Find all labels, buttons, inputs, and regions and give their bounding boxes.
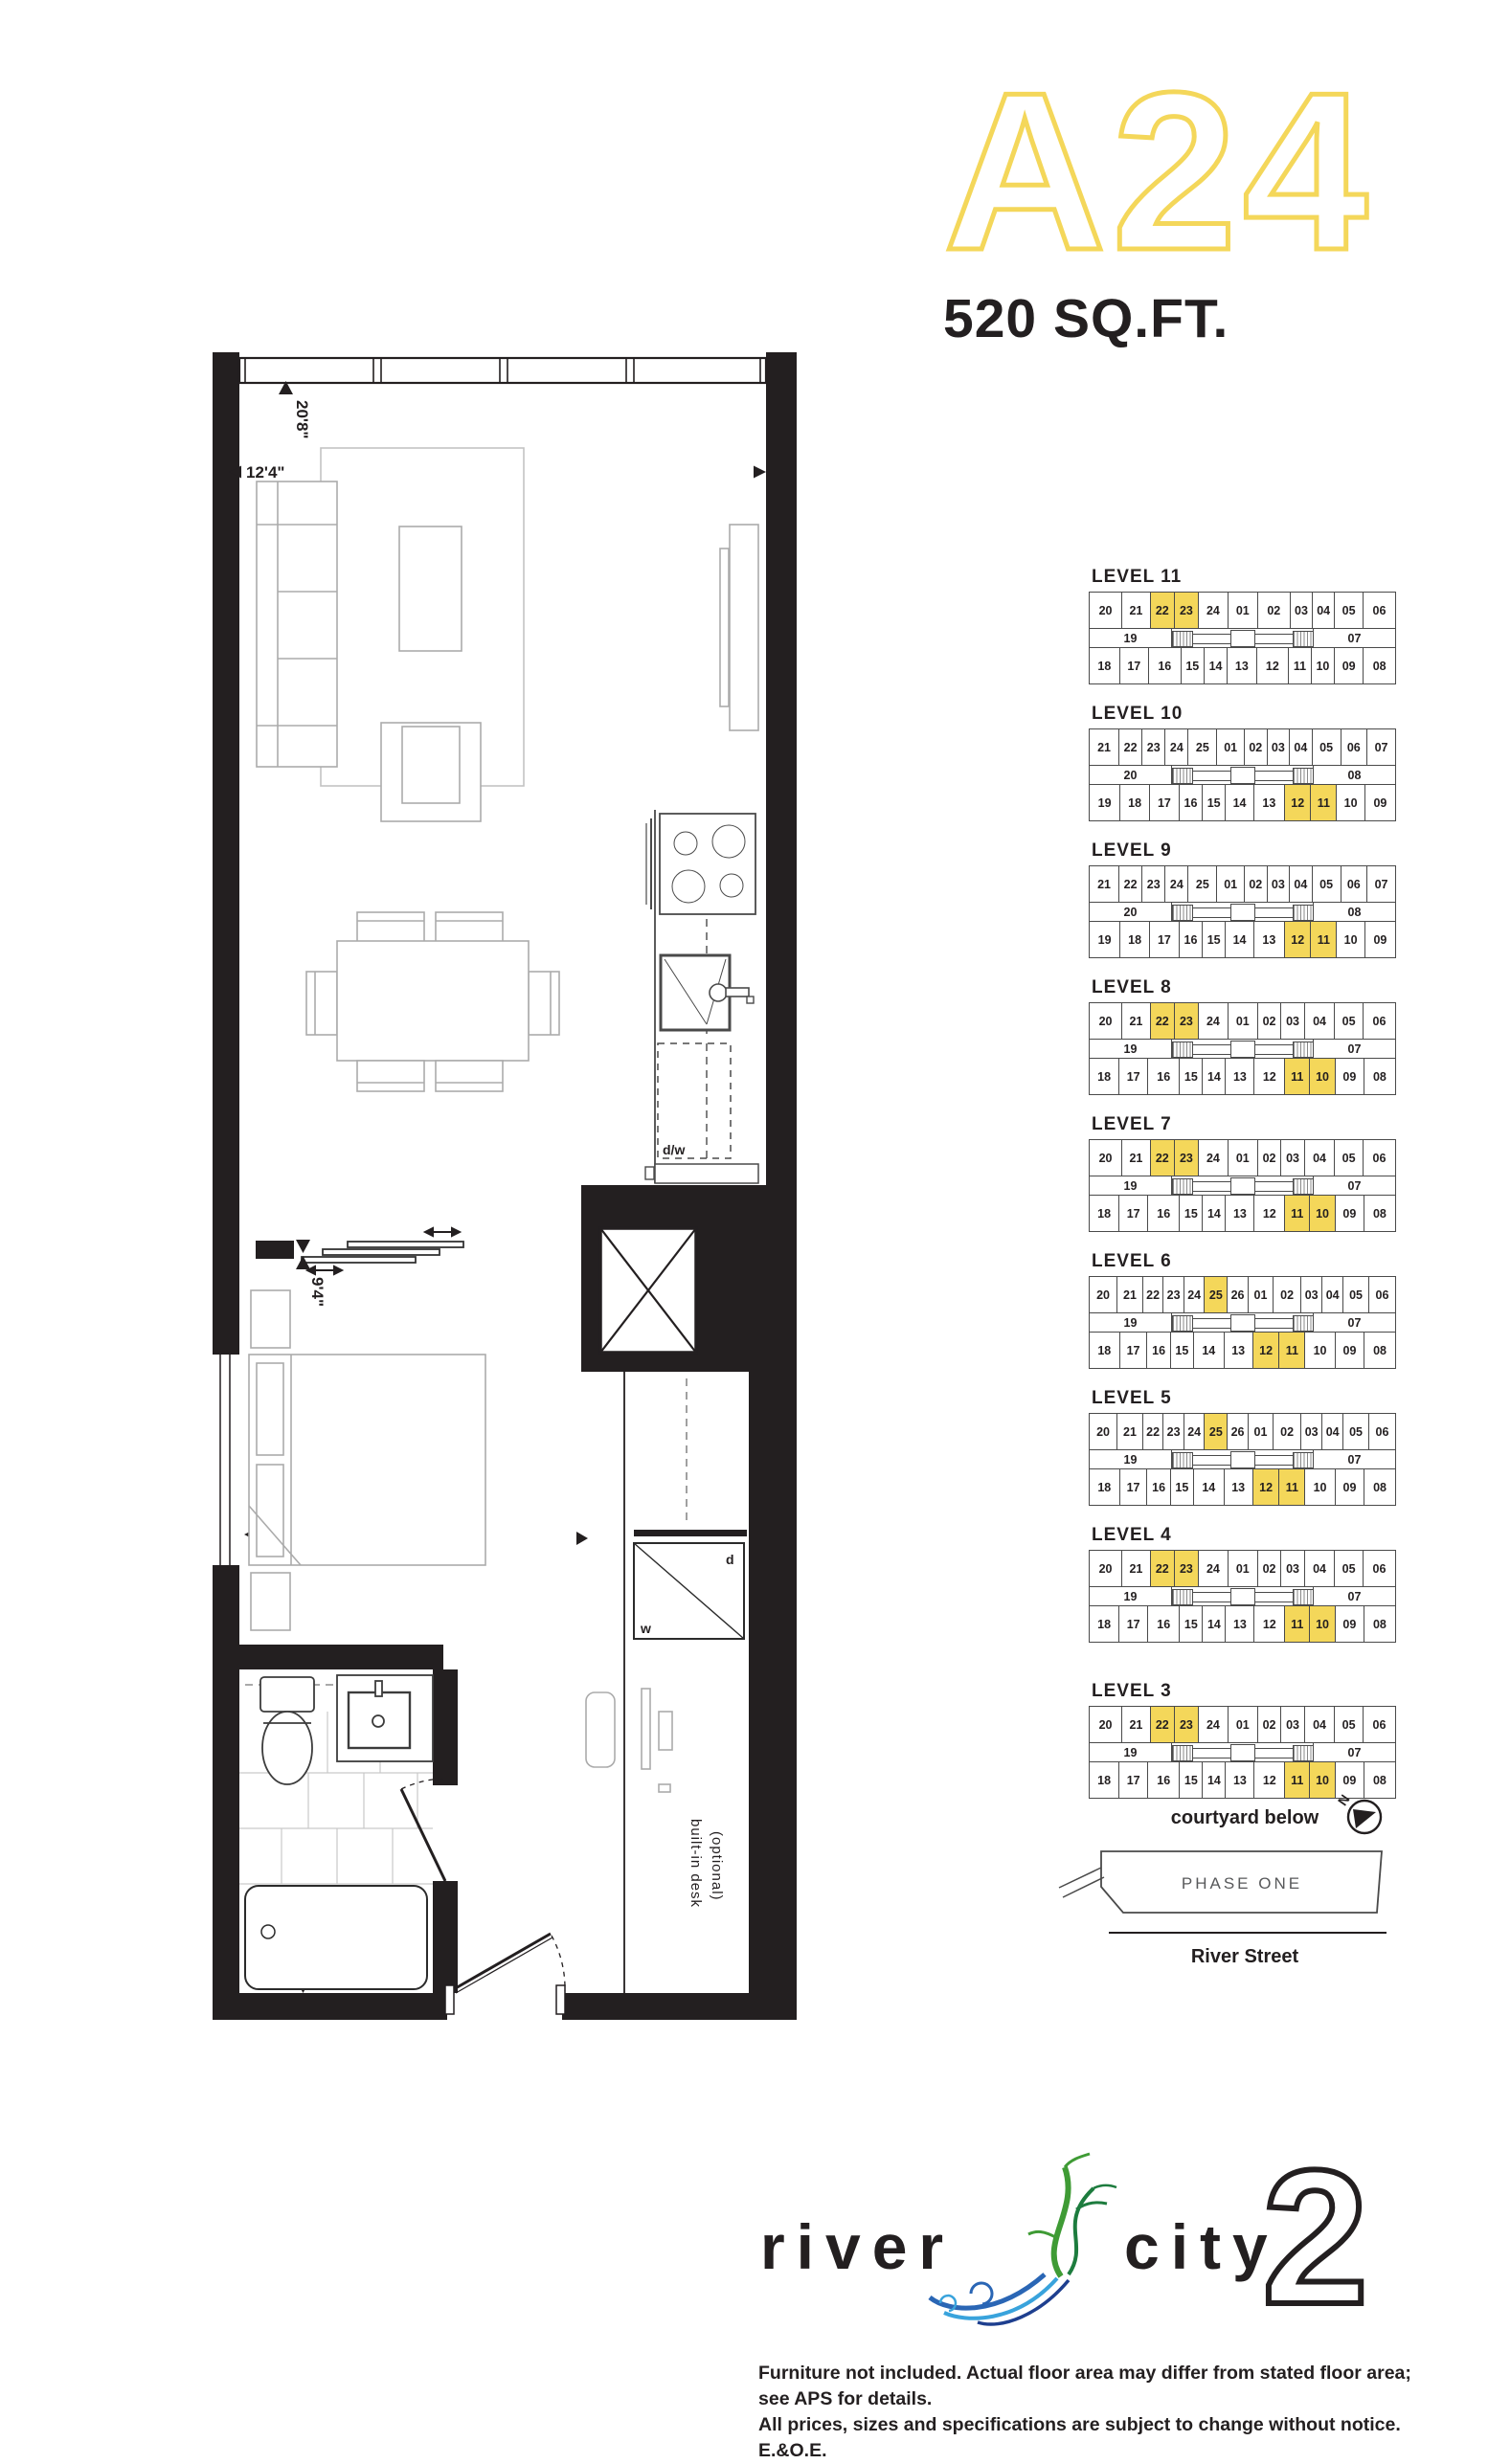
unit-cell-19: 19 — [1089, 1449, 1172, 1469]
entry-door — [445, 1934, 565, 2014]
unit-cell-18: 18 — [1089, 1195, 1119, 1232]
unit-cell-19: 19 — [1089, 1039, 1172, 1059]
disclaimer-line2: All prices, sizes and specifications are… — [758, 2412, 1419, 2464]
corridor — [1192, 1181, 1231, 1192]
unit-cell-23: 23 — [1141, 865, 1165, 903]
unit-cell-08: 08 — [1364, 1195, 1396, 1232]
unit-cell-19: 19 — [1089, 1176, 1172, 1196]
unit-cell-17: 17 — [1119, 647, 1149, 684]
unit-cell-12: 12 — [1253, 1058, 1285, 1095]
unit-cell-12: 12 — [1256, 647, 1290, 684]
unit-cell-13: 13 — [1225, 1605, 1254, 1643]
stair-icon — [1172, 768, 1193, 784]
unit-cell-20: 20 — [1089, 902, 1172, 922]
level-label: LEVEL 3 — [1092, 1681, 1398, 1702]
unit-cell-06: 06 — [1341, 865, 1368, 903]
corridor — [1254, 634, 1294, 644]
unit-cell-14: 14 — [1202, 1605, 1226, 1643]
elevator-icon — [1230, 1588, 1255, 1605]
stair-icon — [1172, 631, 1193, 647]
unit-cell-09: 09 — [1335, 1332, 1364, 1369]
stair-icon — [1172, 1315, 1193, 1332]
unit-cell-02: 02 — [1244, 865, 1268, 903]
unit-cell-03: 03 — [1267, 728, 1291, 766]
unit-cell-07: 07 — [1313, 628, 1396, 648]
unit-cell-11-highlighted: 11 — [1284, 1058, 1310, 1095]
unit-cell-09: 09 — [1335, 1468, 1364, 1506]
unit-cell-07: 07 — [1313, 1176, 1396, 1196]
unit-cell-20: 20 — [1089, 1139, 1122, 1176]
unit-cell-24: 24 — [1198, 1706, 1229, 1743]
unit-cell-10: 10 — [1311, 647, 1335, 684]
bedroom-window — [216, 1355, 234, 1565]
keyplate: 2021222324010203040506190718171615141312… — [1090, 593, 1396, 684]
level-block-level-10: LEVEL 1021222324250102030405060720081918… — [1090, 704, 1398, 821]
unit-cell-03: 03 — [1280, 1002, 1305, 1040]
stair-icon — [1172, 1042, 1193, 1058]
unit-cell-11: 11 — [1288, 647, 1312, 684]
unit-cell-05: 05 — [1334, 1550, 1364, 1587]
unit-cell-13: 13 — [1225, 1761, 1254, 1799]
unit-cell-05: 05 — [1334, 1139, 1364, 1176]
unit-cell-20: 20 — [1089, 765, 1172, 785]
unit-cell-24: 24 — [1164, 728, 1188, 766]
corridor — [1192, 1044, 1231, 1055]
unit-cell-18: 18 — [1089, 1605, 1119, 1643]
unit-cell-03: 03 — [1300, 1413, 1322, 1450]
unit-cell-05: 05 — [1342, 1276, 1369, 1313]
unit-cell-02: 02 — [1273, 1276, 1301, 1313]
elevator-icon — [1230, 767, 1255, 784]
unit-cell-02: 02 — [1257, 1706, 1282, 1743]
unit-cell-13: 13 — [1227, 647, 1256, 684]
unit-cell-06: 06 — [1363, 1002, 1396, 1040]
unit-cell-21: 21 — [1089, 728, 1119, 766]
unit-cell-01: 01 — [1248, 1276, 1274, 1313]
corridor — [1254, 1044, 1294, 1055]
elevator-icon — [1230, 1041, 1255, 1058]
unit-cell-04: 04 — [1304, 1706, 1336, 1743]
desk-label-line2: (optional) — [709, 1831, 725, 1901]
unit-cell-18: 18 — [1089, 1468, 1120, 1506]
unit-cell-16: 16 — [1179, 784, 1203, 821]
unit-cell-09: 09 — [1335, 1058, 1364, 1095]
unit-cell-09: 09 — [1334, 647, 1364, 684]
corridor — [1254, 1592, 1294, 1602]
unit-cell-07: 07 — [1313, 1312, 1396, 1333]
unit-cell-06: 06 — [1368, 1276, 1396, 1313]
stair-icon — [1293, 1589, 1314, 1605]
unit-cell-20: 20 — [1089, 592, 1122, 629]
unit-cell-20: 20 — [1089, 1550, 1122, 1587]
unit-cell-14: 14 — [1202, 1761, 1226, 1799]
corridor — [1192, 634, 1231, 644]
unit-cell-08: 08 — [1364, 1058, 1396, 1095]
unit-floorplan: d/w 20'8" 12'4" 9'4" 9'7" — [213, 352, 797, 2020]
area-label: 520 SQ.FT. — [943, 287, 1229, 350]
unit-cell-24: 24 — [1198, 1002, 1229, 1040]
disclaimer: Furniture not included. Actual floor are… — [758, 2361, 1419, 2464]
keyplate: 2122232425010203040506072008191817161514… — [1090, 866, 1396, 958]
unit-cell-03: 03 — [1280, 1550, 1305, 1587]
unit-cell-13: 13 — [1225, 1058, 1254, 1095]
stair-icon — [1172, 1589, 1193, 1605]
corridor — [1254, 1455, 1294, 1466]
unit-cell-18: 18 — [1119, 784, 1150, 821]
unit-cell-01: 01 — [1248, 1413, 1274, 1450]
level-label: LEVEL 4 — [1092, 1525, 1398, 1546]
unit-cell-01: 01 — [1228, 1550, 1258, 1587]
unit-cell-20: 20 — [1089, 1413, 1117, 1450]
unit-cell-23: 23 — [1162, 1413, 1184, 1450]
desk-label-line1: built-in desk — [688, 1819, 704, 1908]
unit-cell-01: 01 — [1228, 592, 1258, 629]
level-block-level-3: LEVEL 3202122232401020304050619071817161… — [1090, 1681, 1398, 1799]
unit-cell-11-highlighted: 11 — [1310, 784, 1337, 821]
keyplate: 2021222324010203040506190718171615141312… — [1090, 1140, 1396, 1232]
level-block-level-11: LEVEL 1120212223240102030405061907181716… — [1090, 567, 1398, 684]
unit-cell-25-highlighted: 25 — [1204, 1276, 1228, 1313]
unit-cell-23: 23 — [1162, 1276, 1184, 1313]
sliding-partition — [302, 1242, 463, 1263]
unit-cell-14: 14 — [1193, 1332, 1225, 1369]
level-label: LEVEL 9 — [1092, 840, 1398, 862]
unit-cell-04: 04 — [1304, 1139, 1336, 1176]
unit-cell-16: 16 — [1179, 921, 1203, 958]
unit-cell-13: 13 — [1253, 784, 1285, 821]
unit-cell-17: 17 — [1118, 1605, 1148, 1643]
unit-cell-15: 15 — [1179, 1058, 1203, 1095]
unit-cell-20: 20 — [1089, 1002, 1122, 1040]
unit-cell-15: 15 — [1179, 1761, 1203, 1799]
unit-cell-14: 14 — [1204, 647, 1228, 684]
unit-cell-16: 16 — [1148, 647, 1182, 684]
unit-cell-18: 18 — [1089, 1332, 1120, 1369]
unit-cell-17: 17 — [1119, 1468, 1148, 1506]
unit-cell-10: 10 — [1336, 921, 1365, 958]
unit-cell-06: 06 — [1363, 592, 1396, 629]
unit-cell-17: 17 — [1118, 1761, 1148, 1799]
unit-cell-15: 15 — [1202, 784, 1226, 821]
level-label: LEVEL 8 — [1092, 977, 1398, 998]
unit-cell-06: 06 — [1363, 1139, 1396, 1176]
unit-cell-02: 02 — [1273, 1413, 1301, 1450]
stair-icon — [1293, 1042, 1314, 1058]
unit-cell-24: 24 — [1164, 865, 1188, 903]
unit-cell-10-highlighted: 10 — [1309, 1605, 1336, 1643]
logo-plant-flourish — [1028, 2154, 1116, 2276]
river-street-label: River Street — [1191, 1946, 1299, 1967]
unit-cell-05: 05 — [1334, 1706, 1364, 1743]
unit-cell-12-highlighted: 12 — [1252, 1332, 1280, 1369]
corridor — [1254, 1748, 1294, 1758]
unit-cell-21: 21 — [1116, 1276, 1143, 1313]
unit-cell-22: 22 — [1142, 1276, 1164, 1313]
unit-cell-15: 15 — [1179, 1605, 1203, 1643]
unit-cell-09: 09 — [1364, 921, 1396, 958]
stair-icon — [1172, 1745, 1193, 1761]
bed — [249, 1355, 485, 1565]
unit-cell-16: 16 — [1146, 1332, 1170, 1369]
stair-icon — [1172, 905, 1193, 921]
unit-cell-21: 21 — [1121, 1706, 1151, 1743]
unit-cell-07: 07 — [1313, 1039, 1396, 1059]
unit-cell-09: 09 — [1335, 1605, 1364, 1643]
corridor — [1254, 771, 1294, 781]
north-letter: N — [1337, 1792, 1353, 1808]
unit-cell-12: 12 — [1253, 1761, 1285, 1799]
unit-cell-12: 12 — [1253, 1605, 1285, 1643]
unit-cell-01: 01 — [1228, 1139, 1258, 1176]
unit-cell-05: 05 — [1334, 1002, 1364, 1040]
corridor — [1254, 907, 1294, 918]
unit-cell-11-highlighted: 11 — [1278, 1332, 1305, 1369]
unit-cell-23-highlighted: 23 — [1174, 1706, 1199, 1743]
corridor — [1192, 1455, 1231, 1466]
stair-icon — [1293, 905, 1314, 921]
unit-cell-24: 24 — [1198, 592, 1229, 629]
unit-cell-24: 24 — [1184, 1413, 1206, 1450]
washer-label: w — [640, 1621, 651, 1636]
unit-cell-02: 02 — [1257, 1002, 1282, 1040]
unit-cell-17: 17 — [1149, 784, 1180, 821]
unit-cell-24: 24 — [1198, 1550, 1229, 1587]
keyplate: 2021222324010203040506190718171615141312… — [1090, 1003, 1396, 1095]
unit-cell-08: 08 — [1363, 647, 1396, 684]
unit-cell-16: 16 — [1147, 1195, 1180, 1232]
unit-cell-12-highlighted: 12 — [1284, 784, 1312, 821]
unit-cell-19: 19 — [1089, 921, 1120, 958]
unit-cell-22-highlighted: 22 — [1150, 1002, 1175, 1040]
kitchen — [645, 810, 758, 1183]
elevator-icon — [1230, 904, 1255, 921]
unit-cell-12-highlighted: 12 — [1284, 921, 1312, 958]
dishwasher — [658, 1043, 731, 1158]
unit-cell-19: 19 — [1089, 628, 1172, 648]
elevator-icon — [1230, 1314, 1255, 1332]
unit-cell-20: 20 — [1089, 1276, 1117, 1313]
dryer-label: d — [726, 1552, 734, 1567]
unit-cell-14: 14 — [1193, 1468, 1225, 1506]
bathroom-door — [401, 1779, 445, 1881]
unit-cell-03: 03 — [1280, 1139, 1305, 1176]
unit-cell-18: 18 — [1119, 921, 1150, 958]
unit-cell-23-highlighted: 23 — [1174, 592, 1199, 629]
unit-cell-11-highlighted: 11 — [1310, 921, 1337, 958]
bathroom — [239, 1675, 445, 1989]
unit-cell-25: 25 — [1187, 728, 1217, 766]
dishwasher-label: d/w — [663, 1142, 685, 1157]
unit-cell-23-highlighted: 23 — [1174, 1550, 1199, 1587]
unit-cell-12-highlighted: 12 — [1252, 1468, 1280, 1506]
dim-bedroom-length: 9'4" — [308, 1277, 327, 1307]
keyplate: 2021222324252601020304050619071817161514… — [1090, 1277, 1396, 1369]
unit-cell-04: 04 — [1321, 1276, 1343, 1313]
unit-cell-17: 17 — [1149, 921, 1180, 958]
unit-cell-01: 01 — [1216, 728, 1245, 766]
corridor — [1192, 1318, 1231, 1329]
unit-cell-11-highlighted: 11 — [1278, 1468, 1305, 1506]
unit-cell-24: 24 — [1184, 1276, 1206, 1313]
level-block-level-9: LEVEL 9212223242501020304050607200819181… — [1090, 840, 1398, 958]
unit-cell-21: 21 — [1089, 865, 1119, 903]
unit-cell-13: 13 — [1224, 1332, 1253, 1369]
unit-cell-08: 08 — [1313, 765, 1396, 785]
unit-cell-15: 15 — [1170, 1468, 1194, 1506]
unit-cell-04: 04 — [1304, 1550, 1336, 1587]
unit-cell-06: 06 — [1341, 728, 1368, 766]
unit-cell-22-highlighted: 22 — [1150, 1706, 1175, 1743]
unit-cell-21: 21 — [1116, 1413, 1143, 1450]
unit-cell-06: 06 — [1363, 1706, 1396, 1743]
unit-cell-14: 14 — [1202, 1058, 1226, 1095]
unit-cell-10-highlighted: 10 — [1309, 1761, 1336, 1799]
level-label: LEVEL 10 — [1092, 704, 1398, 725]
unit-cell-04: 04 — [1312, 592, 1335, 629]
dim-living-length: 20'8" — [293, 400, 311, 438]
unit-cell-08: 08 — [1364, 1332, 1396, 1369]
keyplate: 2021222324010203040506190718171615141312… — [1090, 1551, 1396, 1643]
stair-icon — [1172, 1452, 1193, 1468]
unit-cell-03: 03 — [1267, 865, 1291, 903]
laundry-closet: d w — [624, 1372, 747, 1993]
stair-icon — [1293, 1745, 1314, 1761]
unit-cell-16: 16 — [1147, 1761, 1180, 1799]
unit-cell-07: 07 — [1366, 728, 1396, 766]
river-city-2-logo: river city 2 — [753, 2152, 1413, 2329]
unit-cell-09: 09 — [1335, 1195, 1364, 1232]
unit-cell-15: 15 — [1181, 647, 1205, 684]
unit-cell-25-highlighted: 25 — [1204, 1413, 1228, 1450]
unit-cell-22: 22 — [1118, 728, 1142, 766]
unit-cell-05: 05 — [1312, 728, 1341, 766]
level-block-level-5: LEVEL 5202122232425260102030405061907181… — [1090, 1388, 1398, 1506]
unit-cell-07: 07 — [1313, 1586, 1396, 1606]
unit-cell-08: 08 — [1313, 902, 1396, 922]
keyplate: 2021222324010203040506190718171615141312… — [1090, 1707, 1396, 1799]
unit-cell-13: 13 — [1253, 921, 1285, 958]
unit-cell-26: 26 — [1227, 1276, 1249, 1313]
unit-cell-03: 03 — [1290, 592, 1313, 629]
unit-cell-06: 06 — [1363, 1550, 1396, 1587]
unit-cell-23: 23 — [1141, 728, 1165, 766]
unit-cell-23-highlighted: 23 — [1174, 1002, 1199, 1040]
logo-river: river — [760, 2211, 955, 2282]
stair-icon — [1293, 768, 1314, 784]
unit-cell-19: 19 — [1089, 1742, 1172, 1762]
unit-cell-11-highlighted: 11 — [1284, 1761, 1310, 1799]
unit-cell-01: 01 — [1228, 1002, 1258, 1040]
unit-cell-17: 17 — [1119, 1332, 1148, 1369]
unit-cell-13: 13 — [1225, 1195, 1254, 1232]
unit-cell-04: 04 — [1289, 728, 1313, 766]
unit-cell-02: 02 — [1257, 1550, 1282, 1587]
level-block-level-7: LEVEL 7202122232401020304050619071817161… — [1090, 1114, 1398, 1232]
unit-cell-08: 08 — [1364, 1605, 1396, 1643]
unit-cell-21: 21 — [1121, 1550, 1151, 1587]
phase-one-diagram: PHASE ONE River Street — [1053, 1843, 1408, 1986]
unit-cell-14: 14 — [1202, 1195, 1226, 1232]
unit-cell-22: 22 — [1118, 865, 1142, 903]
logo-two: 2 — [1262, 2152, 1368, 2329]
unit-cell-19: 19 — [1089, 1586, 1172, 1606]
unit-cell-07: 07 — [1313, 1742, 1396, 1762]
unit-cell-25: 25 — [1187, 865, 1217, 903]
level-label: LEVEL 11 — [1092, 567, 1398, 588]
unit-cell-18: 18 — [1089, 1761, 1119, 1799]
unit-cell-23-highlighted: 23 — [1174, 1139, 1199, 1176]
bedroom-furniture — [249, 1290, 485, 1630]
level-block-level-4: LEVEL 4202122232401020304050619071817161… — [1090, 1525, 1398, 1643]
unit-cell-07: 07 — [1366, 865, 1396, 903]
level-label: LEVEL 7 — [1092, 1114, 1398, 1135]
unit-cell-05: 05 — [1312, 865, 1341, 903]
unit-cell-22-highlighted: 22 — [1150, 592, 1175, 629]
corridor — [1192, 771, 1231, 781]
mech-shaft — [600, 1228, 696, 1353]
unit-cell-09: 09 — [1364, 784, 1396, 821]
unit-cell-02: 02 — [1257, 1139, 1282, 1176]
unit-cell-15: 15 — [1202, 921, 1226, 958]
unit-cell-11-highlighted: 11 — [1284, 1605, 1310, 1643]
toilet — [260, 1677, 314, 1784]
unit-cell-03: 03 — [1300, 1276, 1322, 1313]
disclaimer-line1: Furniture not included. Actual floor are… — [758, 2361, 1419, 2412]
unit-cell-04: 04 — [1289, 865, 1313, 903]
plan-code: A24 — [943, 67, 1373, 287]
unit-cell-24: 24 — [1198, 1139, 1229, 1176]
corridor — [1254, 1181, 1294, 1192]
unit-cell-10-highlighted: 10 — [1309, 1058, 1336, 1095]
level-label: LEVEL 6 — [1092, 1251, 1398, 1272]
elevator-icon — [1230, 1744, 1255, 1761]
stair-icon — [1172, 1178, 1193, 1195]
unit-cell-08: 08 — [1364, 1468, 1396, 1506]
unit-cell-21: 21 — [1121, 1139, 1151, 1176]
dim-living-width: 12'4" — [246, 463, 284, 482]
stair-icon — [1293, 631, 1314, 647]
bathtub — [245, 1886, 427, 1989]
unit-cell-05: 05 — [1334, 592, 1364, 629]
unit-cell-16: 16 — [1147, 1058, 1180, 1095]
unit-cell-18: 18 — [1089, 647, 1120, 684]
north-arrow: N — [1337, 1788, 1390, 1842]
living-room-furniture — [257, 448, 758, 821]
unit-cell-04: 04 — [1321, 1413, 1343, 1450]
unit-cell-10: 10 — [1304, 1468, 1336, 1506]
unit-cell-01: 01 — [1228, 1706, 1258, 1743]
elevator-icon — [1230, 630, 1255, 647]
corridor — [1192, 1748, 1231, 1758]
unit-cell-16: 16 — [1147, 1605, 1180, 1643]
corridor — [1192, 1592, 1231, 1602]
unit-cell-20: 20 — [1089, 1706, 1122, 1743]
unit-cell-22: 22 — [1142, 1413, 1164, 1450]
level-block-level-8: LEVEL 8202122232401020304050619071817161… — [1090, 977, 1398, 1095]
unit-cell-10: 10 — [1336, 784, 1365, 821]
keyplate: 2021222324252601020304050619071817161514… — [1090, 1414, 1396, 1506]
unit-cell-06: 06 — [1368, 1413, 1396, 1450]
unit-cell-15: 15 — [1179, 1195, 1203, 1232]
stair-icon — [1293, 1452, 1314, 1468]
elevator-icon — [1230, 1177, 1255, 1195]
corridor — [1254, 1318, 1294, 1329]
level-block-level-6: LEVEL 6202122232425260102030405061907181… — [1090, 1251, 1398, 1369]
unit-cell-07: 07 — [1313, 1449, 1396, 1469]
window-band — [239, 358, 766, 383]
unit-cell-12: 12 — [1253, 1195, 1285, 1232]
stair-icon — [1293, 1178, 1314, 1195]
